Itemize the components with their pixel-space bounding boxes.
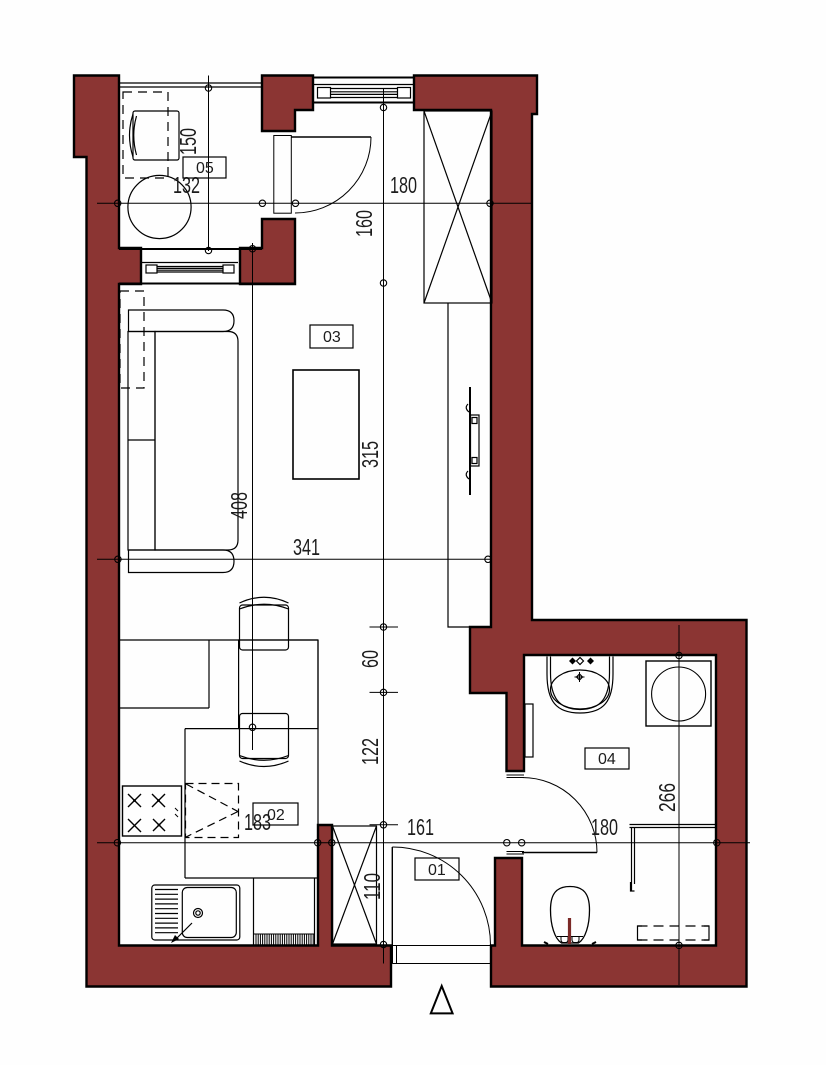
svg-text:341: 341: [293, 534, 320, 560]
svg-text:01: 01: [428, 862, 446, 879]
svg-text:122: 122: [357, 738, 383, 765]
svg-text:05: 05: [196, 160, 214, 177]
svg-text:60: 60: [357, 650, 383, 668]
svg-text:160: 160: [351, 210, 377, 237]
svg-text:02: 02: [267, 807, 285, 824]
svg-text:161: 161: [407, 814, 434, 840]
svg-text:266: 266: [654, 783, 680, 812]
svg-text:03: 03: [323, 329, 341, 346]
svg-text:315: 315: [357, 441, 383, 468]
svg-text:408: 408: [226, 492, 252, 519]
svg-text:04: 04: [598, 751, 616, 768]
svg-text:180: 180: [390, 172, 417, 198]
svg-text:110: 110: [359, 873, 385, 900]
svg-text:180: 180: [591, 814, 618, 840]
svg-text:150: 150: [175, 128, 201, 155]
